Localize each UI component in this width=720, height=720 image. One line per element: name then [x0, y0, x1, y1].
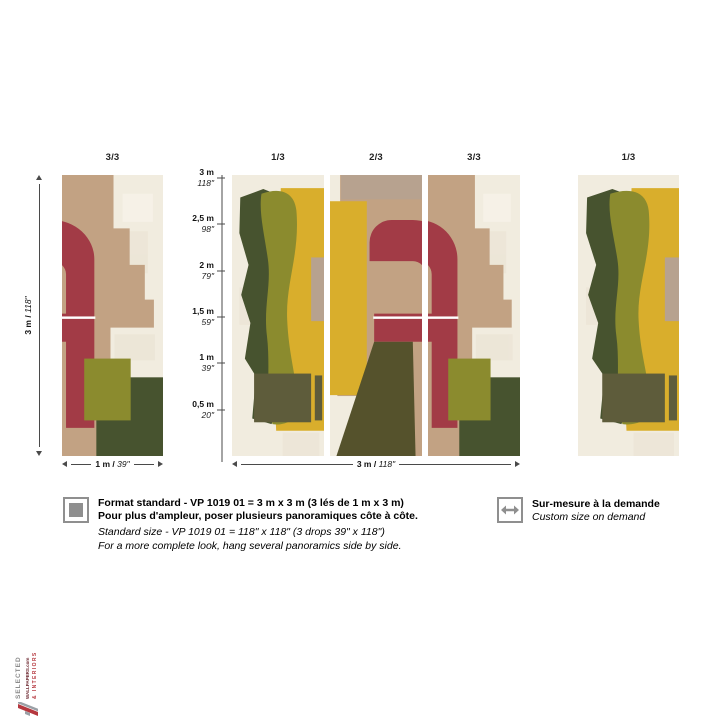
panel-label-left: 3/3	[62, 151, 163, 165]
standard-format-info: Format standard - VP 1019 01 = 3 m x 3 m…	[63, 497, 418, 553]
wallpaper-strip-left-3of3	[62, 175, 163, 456]
scale-tick: 1,5 m59"	[168, 306, 214, 327]
width-dimension-middle: 3 m / 118"	[232, 458, 520, 470]
scale-ruler	[215, 174, 227, 464]
scale-tick: 2,5 m98"	[168, 213, 214, 234]
standard-format-en-line1: Standard size - VP 1019 01 = 118" x 118"…	[98, 526, 418, 540]
scale-tick: 1 m39"	[168, 352, 214, 373]
dimension-arrow-icon	[515, 461, 520, 467]
dimension-arrow-icon	[36, 175, 42, 180]
custom-size-info: Sur-mesure à la demande Custom size on d…	[497, 497, 660, 525]
height-dimension-label: 3 m / 118"	[22, 175, 34, 456]
standard-format-fr-line2: Pour plus d'ampleur, poser plusieurs pan…	[98, 510, 418, 523]
logo-mark-icon	[16, 702, 38, 716]
logo-line-selected: SELECTED	[15, 651, 22, 699]
width-dimension-middle-label: 3 m / 118"	[357, 459, 395, 469]
custom-size-en: Custom size on demand	[532, 511, 660, 525]
panel-label-strip-1: 1/3	[232, 151, 324, 165]
scale-tick: 0,5 m20"	[168, 399, 214, 420]
height-dimension: 3 m / 118"	[22, 175, 44, 456]
scale-tick: 3 m118"	[168, 167, 214, 188]
brand-logo: SELECTED WALLPAPERS.com & INTERIORS	[15, 646, 38, 716]
logo-line-interiors: & INTERIORS	[32, 651, 38, 699]
wallpaper-strip-3of3	[428, 175, 520, 456]
dimension-arrow-icon	[36, 451, 42, 456]
panel-label-right: 1/3	[578, 151, 679, 165]
custom-size-fr: Sur-mesure à la demande	[532, 498, 660, 511]
width-dimension-left: 1 m / 39"	[62, 458, 163, 470]
panel-label-strip-2: 2/3	[330, 151, 422, 165]
panel-label-strip-3: 3/3	[428, 151, 520, 165]
filled-square-icon	[63, 497, 89, 523]
scale-tick: 2 m79"	[168, 260, 214, 281]
width-dimension-left-label: 1 m / 39"	[95, 459, 129, 469]
logo-line-wallpapers: WALLPAPERS.com	[22, 651, 32, 699]
standard-format-fr-line1: Format standard - VP 1019 01 = 3 m x 3 m…	[98, 497, 418, 510]
wallpaper-strip-2of3	[330, 175, 422, 456]
standard-format-en-line2: For a more complete look, hang several p…	[98, 540, 418, 554]
wallpaper-strip-1of3	[232, 175, 324, 456]
horizontal-arrows-icon	[497, 497, 523, 523]
wallpaper-strip-right-1of3	[578, 175, 679, 456]
dimension-arrow-icon	[158, 461, 163, 467]
dimension-arrow-icon	[62, 461, 67, 467]
dimension-arrow-icon	[232, 461, 237, 467]
